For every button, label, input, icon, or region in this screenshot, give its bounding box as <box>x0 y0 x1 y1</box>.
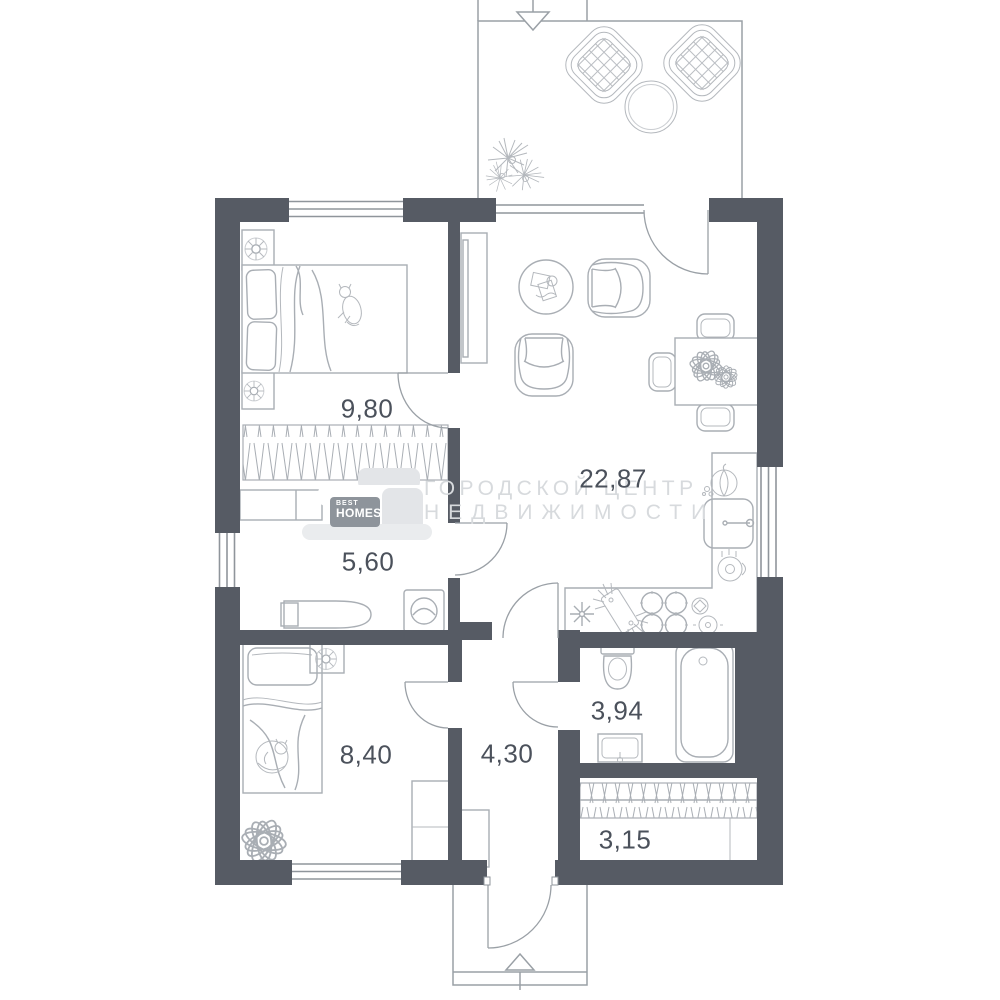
window-bottom <box>292 864 401 879</box>
doors <box>398 210 708 948</box>
glass-wall-terrace <box>496 205 644 213</box>
double-bed <box>242 265 407 373</box>
room-label-living-kitchen: 22,87 <box>579 464 647 495</box>
dining-chair <box>697 314 734 341</box>
window-right <box>761 467 776 577</box>
room-label-bathroom: 3,94 <box>591 696 644 727</box>
plant <box>241 817 287 864</box>
room-label-hall: 5,60 <box>342 547 395 578</box>
living-room-furniture <box>461 233 758 431</box>
watermark-line2: НЕДВИЖИМОСТИ <box>424 501 715 525</box>
ironing-board <box>281 601 371 628</box>
watermark-line1: ГОРОДСКОЙ ЦЕНТР <box>424 477 698 501</box>
best-homes-logo: BEST HOMES <box>330 497 380 527</box>
cabinet <box>460 810 489 867</box>
room-label-hallway: 4,30 <box>481 739 534 770</box>
washing-machine <box>404 590 444 632</box>
room-label-bedroom-1: 9,80 <box>341 394 394 425</box>
armchair <box>515 334 573 396</box>
dining-chair <box>697 404 734 431</box>
bedroom-1-furniture <box>242 230 448 480</box>
dining-chair <box>649 353 676 391</box>
entrance-arrow-top-icon <box>517 0 549 30</box>
lamp-icon <box>316 649 337 670</box>
terrace <box>478 0 747 200</box>
bedroom-2-door <box>405 682 448 728</box>
coffee-table <box>519 260 573 314</box>
kitchen-hallway-door <box>503 583 558 638</box>
bathtub <box>676 643 733 762</box>
window-top <box>289 202 403 217</box>
plant <box>482 138 548 198</box>
hall-door <box>455 523 507 575</box>
tv-console <box>461 233 487 363</box>
window-left <box>220 533 235 587</box>
floor-plan: BEST HOMES ГОРОДСКОЙ ЦЕНТР НЕДВИЖИМОСТИ … <box>0 0 1000 1000</box>
bathroom-door <box>513 682 558 727</box>
room-label-entry: 3,15 <box>599 825 652 856</box>
logo-text-name: HOMES <box>336 507 380 520</box>
armchair <box>588 259 650 317</box>
room-label-bedroom-2: 8,40 <box>340 740 393 771</box>
wicker-chair <box>559 20 650 111</box>
toilet <box>601 643 634 689</box>
terrace-table <box>625 81 677 133</box>
bathroom-sink <box>598 734 642 763</box>
bedroom-1-door <box>398 373 448 428</box>
terrace-door <box>644 210 708 274</box>
porch <box>453 885 587 990</box>
hallway-furniture <box>460 810 489 867</box>
entrance-door <box>484 877 558 948</box>
